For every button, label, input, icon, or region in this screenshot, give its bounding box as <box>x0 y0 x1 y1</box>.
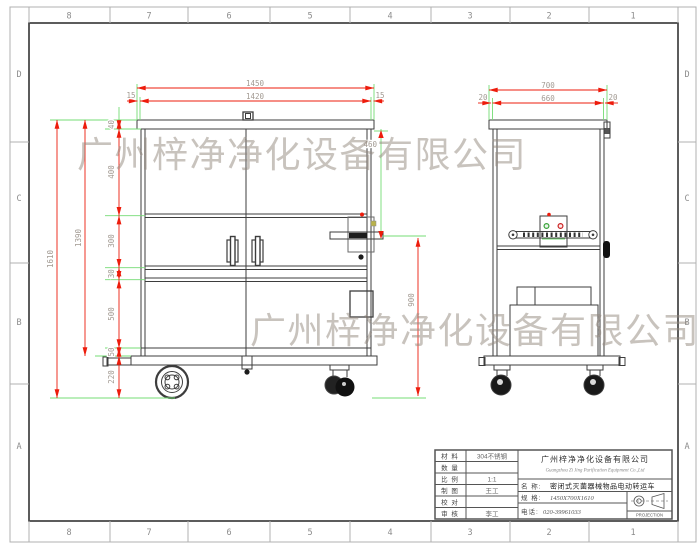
tb-label-scale: 比 例 <box>441 475 459 484</box>
title-block: 材 料 数 量 比 例 制 图 校 对 审 核 304不锈钢 1:1 王工 李工… <box>435 450 672 519</box>
grid-row-label: D <box>684 70 689 80</box>
drive-wheel <box>156 366 188 398</box>
cad-sheet: 8 7 6 5 4 3 2 1 8 7 6 5 4 3 2 1 D C B A <box>0 0 700 548</box>
dim-section-30: 30 <box>107 269 116 279</box>
tb-value-approved-by: 李工 <box>486 509 500 518</box>
tb-label-approved-by: 审 核 <box>441 509 459 518</box>
grid-col-label: 6 <box>226 12 231 22</box>
spec-label: 规 格: <box>521 493 542 502</box>
spec-value: 1450X700X1610 <box>550 495 594 502</box>
handle-grip <box>349 233 367 238</box>
tb-value-drawn-by: 王工 <box>486 487 500 495</box>
grid-labels-right: D C B A <box>684 70 689 452</box>
dim-side-margin-left: 20 <box>478 93 488 102</box>
side-caster-right <box>584 365 604 395</box>
dim-front-margin-left: 15 <box>126 91 135 100</box>
side-caster-left <box>491 365 511 395</box>
dim-side-margin-right: 20 <box>608 93 618 102</box>
drawing-canvas: 8 7 6 5 4 3 2 1 8 7 6 5 4 3 2 1 D C B A <box>0 0 700 548</box>
grid-col-label: 5 <box>307 12 312 22</box>
grid-col-label: 8 <box>66 12 71 22</box>
dim-side-body-width: 660 <box>541 94 555 103</box>
side-lid <box>489 120 607 129</box>
tb-label-drawn-by: 制 图 <box>441 486 459 495</box>
grid-col-label: 3 <box>467 528 472 538</box>
grid-col-label: 4 <box>387 528 392 538</box>
company-name-en: Guangzhou Zi Jing Purification Equipment… <box>546 469 645 474</box>
product-name-label: 名 称: <box>521 482 542 491</box>
grid-col-label: 4 <box>387 12 392 22</box>
tb-label-checked-by: 校 对 <box>441 498 459 507</box>
tb-value-material: 304不锈钢 <box>477 452 508 461</box>
dim-front-body-width: 1420 <box>246 92 265 101</box>
dim-ground-clearance: 220 <box>107 370 116 384</box>
grid-labels-bottom: 8 7 6 5 4 3 2 1 <box>66 528 635 538</box>
grid-col-label: 1 <box>630 528 635 538</box>
dim-section-500: 500 <box>107 307 116 321</box>
grid-row-label: C <box>16 194 21 204</box>
watermark-bottom: 广州梓净净化设备有限公司 <box>250 311 700 351</box>
grid-col-label: 8 <box>66 528 71 538</box>
grid-col-label: 5 <box>307 528 312 538</box>
tb-value-scale: 1:1 <box>487 477 496 484</box>
grid-labels-top: 8 7 6 5 4 3 2 1 <box>66 12 635 22</box>
phone-value: 020-39961033 <box>543 509 582 516</box>
dim-side-total-width: 700 <box>541 81 555 90</box>
grid-col-label: 6 <box>226 528 231 538</box>
lid-latch <box>243 112 253 120</box>
grid-col-label: 7 <box>146 528 151 538</box>
dim-handle-height: 900 <box>407 293 416 307</box>
front-caster <box>325 365 355 397</box>
grid-labels-left: D C B A <box>16 70 21 452</box>
grid-col-label: 2 <box>546 528 551 538</box>
red-button <box>558 224 563 229</box>
grid-col-label: 2 <box>546 12 551 22</box>
red-button <box>360 213 364 217</box>
front-lid <box>137 120 374 129</box>
grid-row-label: B <box>16 318 21 328</box>
dim-total-height: 1610 <box>46 249 55 268</box>
grid-col-label: 1 <box>630 12 635 22</box>
grid-row-label: A <box>684 442 689 452</box>
grid-col-label: 7 <box>146 12 151 22</box>
product-name-value: 密闭式灭菌器械物品电动转运车 <box>550 482 655 491</box>
dim-section-300: 300 <box>107 234 116 248</box>
projection-label: PROJECTION <box>636 513 663 518</box>
tb-label-material: 材 料 <box>441 452 459 461</box>
dim-front-total-width: 1450 <box>246 79 265 88</box>
dim-front-margin-right: 15 <box>375 91 384 100</box>
side-base <box>479 356 625 366</box>
dim-section-50: 50 <box>107 347 116 357</box>
tb-label-quantity: 数 量 <box>441 463 459 472</box>
grid-row-label: D <box>16 70 21 80</box>
side-grab-handle <box>603 241 610 258</box>
dim-body-height: 1390 <box>74 228 83 247</box>
dim-lid-height: 40 <box>107 120 116 130</box>
grid-row-label: C <box>684 194 689 204</box>
projection-symbol <box>631 494 668 509</box>
grid-row-label: A <box>16 442 21 452</box>
company-name-cn: 广州梓净净化设备有限公司 <box>541 454 649 464</box>
phone-label: 电话: <box>521 507 539 516</box>
watermark-top: 广州梓净净化设备有限公司 <box>77 135 527 175</box>
grid-col-label: 3 <box>467 12 472 22</box>
green-button <box>544 224 549 229</box>
